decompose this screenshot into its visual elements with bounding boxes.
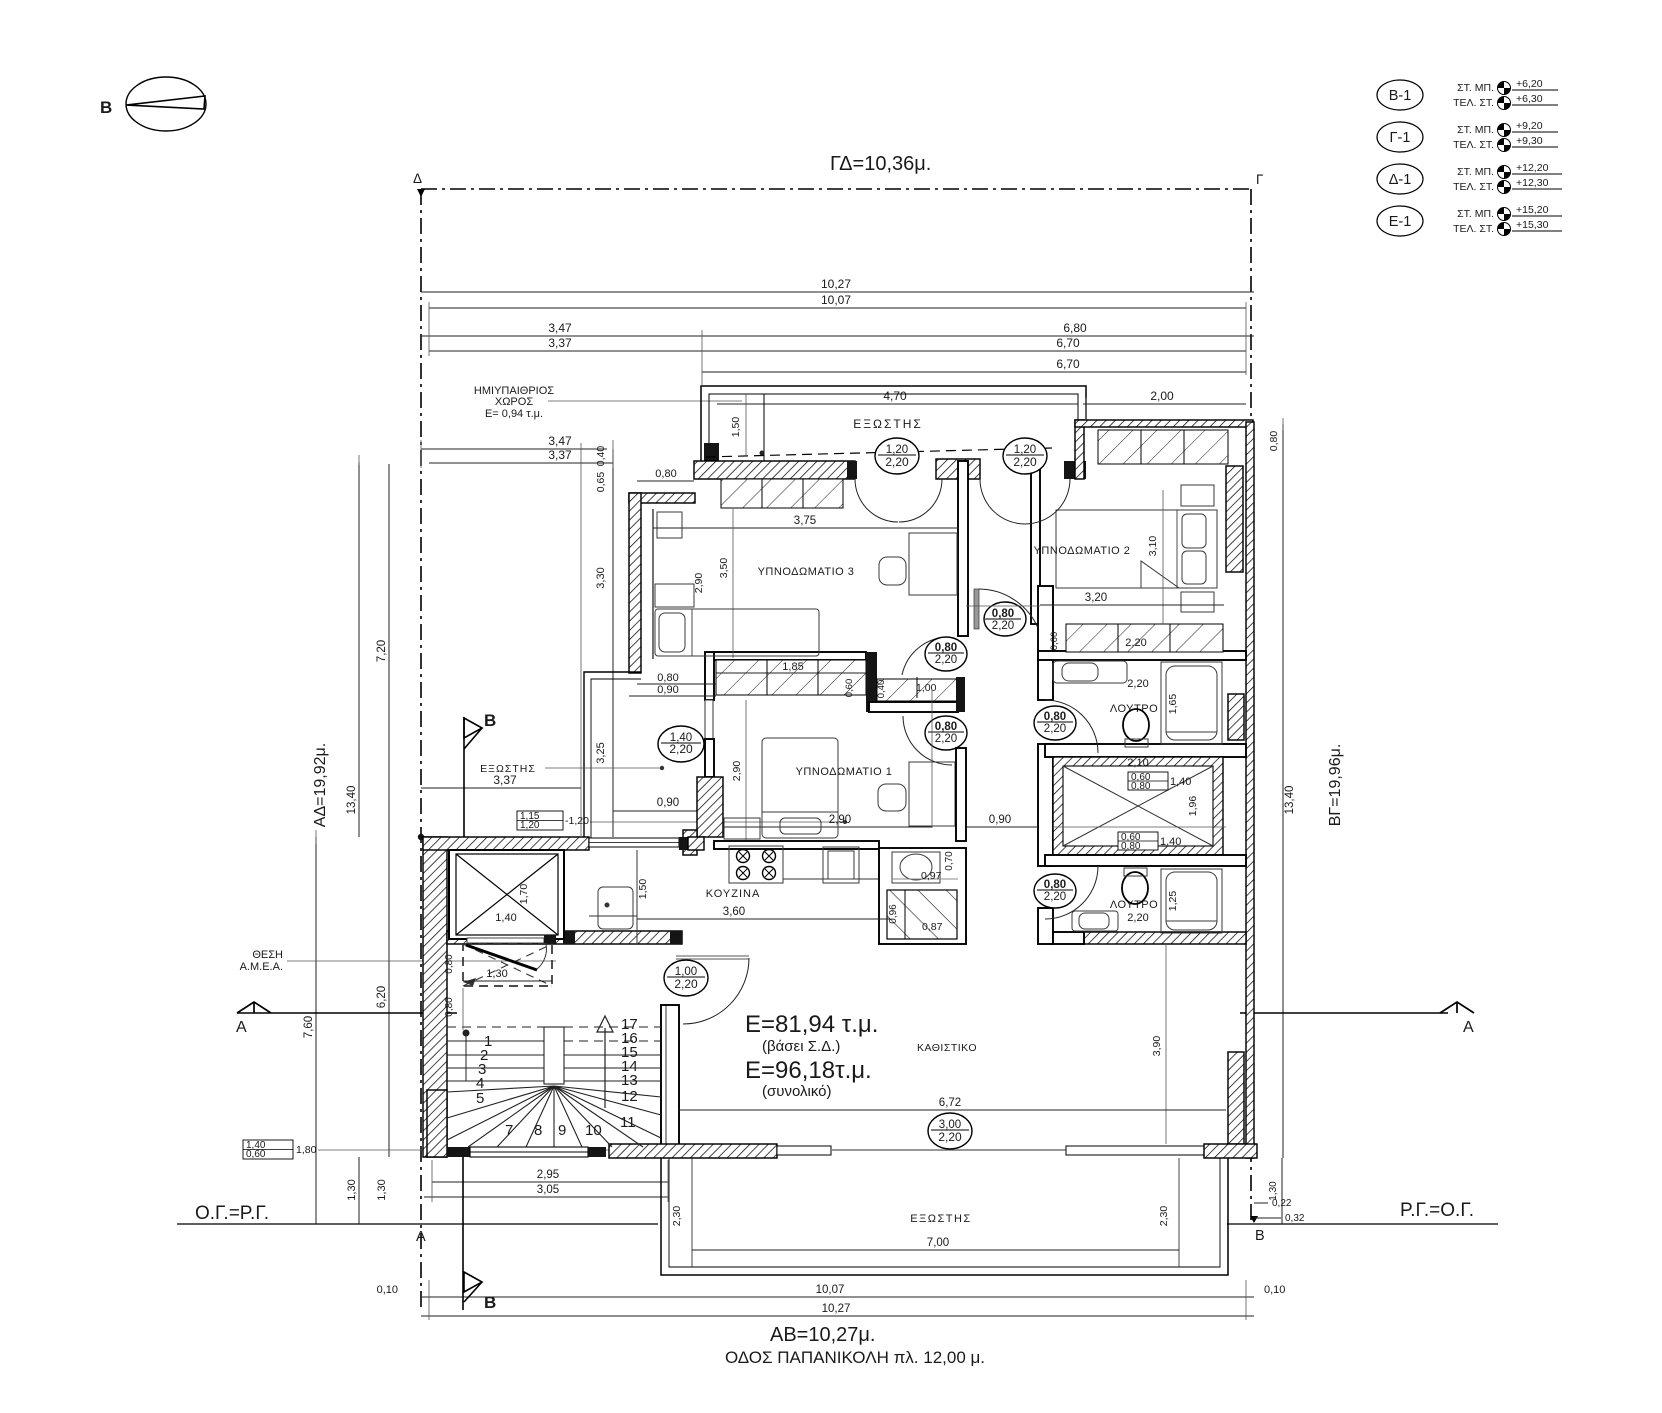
- svg-text:11: 11: [620, 1114, 636, 1131]
- svg-text:0,40: 0,40: [876, 680, 887, 699]
- svg-text:ΑΒ=10,27μ.: ΑΒ=10,27μ.: [770, 1324, 876, 1346]
- svg-text:0,10: 0,10: [1264, 1284, 1285, 1296]
- svg-text:ΕΞΩΣΤΗΣ: ΕΞΩΣΤΗΣ: [853, 417, 923, 431]
- svg-text:0,97: 0,97: [921, 870, 942, 882]
- svg-text:2,90: 2,90: [693, 573, 705, 594]
- svg-text:13,40: 13,40: [1284, 786, 1296, 815]
- svg-text:1,96: 1,96: [1187, 796, 1199, 817]
- svg-text:7,60: 7,60: [303, 1016, 315, 1038]
- svg-text:0,70: 0,70: [944, 851, 955, 871]
- svg-text:2,20: 2,20: [1044, 723, 1066, 735]
- svg-text:7,00: 7,00: [927, 1237, 949, 1249]
- svg-text:17: 17: [621, 1016, 638, 1033]
- svg-text:0,60: 0,60: [1049, 632, 1060, 651]
- svg-text:2,00: 2,00: [1150, 389, 1174, 403]
- svg-text:3,20: 3,20: [1085, 592, 1107, 604]
- svg-text:2,20: 2,20: [1125, 637, 1146, 649]
- svg-text:2,20: 2,20: [885, 455, 909, 469]
- svg-text:A: A: [416, 1229, 426, 1245]
- svg-text:3,37: 3,37: [493, 773, 517, 787]
- svg-text:3,37: 3,37: [548, 448, 572, 462]
- svg-text:A: A: [236, 1019, 247, 1036]
- svg-text:10: 10: [585, 1122, 602, 1139]
- svg-text:1,85: 1,85: [782, 661, 803, 673]
- svg-text:0,80: 0,80: [657, 672, 678, 684]
- svg-text:1,25: 1,25: [1167, 891, 1179, 912]
- svg-text:Ε-1: Ε-1: [1389, 214, 1412, 230]
- svg-text:0,90: 0,90: [657, 797, 679, 809]
- svg-text:1,40: 1,40: [1160, 836, 1181, 848]
- svg-text:0,60: 0,60: [844, 679, 855, 698]
- svg-text:0,65: 0,65: [595, 472, 607, 493]
- svg-text:1,30: 1,30: [486, 968, 507, 980]
- svg-text:ΚΑΘΙΣΤΙΚΟ: ΚΑΘΙΣΤΙΚΟ: [917, 1042, 977, 1054]
- svg-text:3,05: 3,05: [537, 1184, 559, 1196]
- svg-text:12: 12: [621, 1088, 638, 1105]
- svg-text:2,20: 2,20: [1127, 678, 1148, 690]
- svg-text:1,40: 1,40: [495, 912, 516, 924]
- svg-text:3,37: 3,37: [548, 336, 572, 350]
- svg-text:2,90: 2,90: [731, 761, 743, 782]
- svg-text:-1,20: -1,20: [565, 815, 589, 827]
- svg-text:8: 8: [534, 1122, 542, 1139]
- svg-text:3,50: 3,50: [718, 558, 730, 579]
- svg-text:4,70: 4,70: [883, 389, 907, 403]
- svg-text:0,90: 0,90: [657, 684, 678, 696]
- svg-text:2,20: 2,20: [935, 733, 957, 745]
- svg-text:ΟΔΟΣ ΠΑΠΑΝΙΚΟΛΗ πλ. 12,00 μ.: ΟΔΟΣ ΠΑΠΑΝΙΚΟΛΗ πλ. 12,00 μ.: [725, 1348, 985, 1367]
- svg-text:2,30: 2,30: [1158, 1206, 1170, 1227]
- svg-text:2,20: 2,20: [1044, 891, 1066, 903]
- svg-text:Δ-1: Δ-1: [1389, 172, 1412, 188]
- svg-text:1,70: 1,70: [518, 884, 530, 905]
- svg-text:2,90: 2,90: [829, 814, 851, 826]
- svg-text:0,90: 0,90: [989, 814, 1011, 826]
- svg-text:A: A: [1463, 1019, 1474, 1036]
- svg-text:0,80: 0,80: [1044, 711, 1066, 723]
- svg-text:Ο.Γ.=Ρ.Γ.: Ο.Γ.=Ρ.Γ.: [195, 1203, 269, 1224]
- svg-text:0,96: 0,96: [888, 904, 899, 924]
- svg-text:3,90: 3,90: [1151, 1036, 1163, 1057]
- svg-text:0,32: 0,32: [1285, 1213, 1305, 1224]
- svg-text:Γ: Γ: [1256, 172, 1264, 187]
- svg-text:1,65: 1,65: [1167, 694, 1179, 715]
- svg-text:0,80: 0,80: [1131, 781, 1151, 792]
- svg-text:B: B: [1255, 1228, 1265, 1244]
- svg-text:ΓΔ=10,36μ.: ΓΔ=10,36μ.: [830, 153, 931, 175]
- svg-text:+12,20: +12,20: [1516, 162, 1549, 174]
- svg-text:2,20: 2,20: [1127, 912, 1148, 924]
- svg-text:B: B: [100, 98, 112, 117]
- svg-text:0,87: 0,87: [922, 921, 943, 933]
- svg-text:ΥΠΝΟΔΩΜΑΤΙΟ 2: ΥΠΝΟΔΩΜΑΤΙΟ 2: [1034, 545, 1131, 557]
- svg-text:ΑΔ=19,92μ.: ΑΔ=19,92μ.: [312, 743, 329, 827]
- svg-text:3,10: 3,10: [1147, 536, 1159, 557]
- svg-text:3,30: 3,30: [595, 567, 607, 588]
- svg-text:ΣΤ. ΜΠ.: ΣΤ. ΜΠ.: [1457, 166, 1494, 178]
- svg-text:ΥΠΝΟΔΩΜΑΤΙΟ 3: ΥΠΝΟΔΩΜΑΤΙΟ 3: [758, 566, 855, 578]
- svg-text:6,72: 6,72: [939, 1097, 961, 1109]
- svg-text:3,25: 3,25: [595, 742, 607, 763]
- svg-text:Δ: Δ: [413, 171, 422, 186]
- svg-text:3,47: 3,47: [548, 434, 572, 448]
- svg-text:10,27: 10,27: [822, 1303, 851, 1315]
- svg-text:ΚΟΥΖΙΝΑ: ΚΟΥΖΙΝΑ: [706, 888, 761, 900]
- svg-text:0,40: 0,40: [595, 446, 607, 467]
- svg-text:ΕΞΩΣΤΗΣ: ΕΞΩΣΤΗΣ: [910, 1213, 971, 1225]
- svg-text:E=96,18τ.μ.: E=96,18τ.μ.: [745, 1057, 872, 1084]
- svg-text:Γ-1: Γ-1: [1390, 130, 1411, 146]
- svg-text:ΧΩΡΟΣ: ΧΩΡΟΣ: [495, 396, 533, 408]
- svg-text:ΛΟΥΤΡΟ: ΛΟΥΤΡΟ: [1110, 899, 1158, 911]
- svg-text:1,80: 1,80: [296, 1144, 317, 1156]
- svg-text:ΣΤ. ΜΠ.: ΣΤ. ΜΠ.: [1457, 208, 1494, 220]
- svg-text:1,50: 1,50: [730, 417, 742, 438]
- svg-text:A.M.E.A.: A.M.E.A.: [240, 961, 283, 973]
- svg-text:Β-1: Β-1: [1389, 88, 1412, 104]
- svg-text:2,20: 2,20: [992, 620, 1014, 632]
- svg-text:(συνολικό): (συνολικό): [762, 1083, 832, 1100]
- svg-text:1,00: 1,00: [916, 682, 937, 694]
- svg-text:13,40: 13,40: [346, 786, 358, 815]
- svg-text:1,50: 1,50: [637, 879, 649, 900]
- svg-text:2,20: 2,20: [669, 742, 693, 756]
- svg-text:7,20: 7,20: [376, 640, 388, 662]
- svg-text:2,20: 2,20: [1013, 455, 1037, 469]
- svg-text:ΕΞΩΣΤΗΣ: ΕΞΩΣΤΗΣ: [480, 763, 536, 775]
- svg-text:0,80: 0,80: [935, 642, 957, 654]
- svg-text:ΣΤ. ΜΠ.: ΣΤ. ΜΠ.: [1457, 124, 1494, 136]
- svg-text:(βάσει Σ.Δ.): (βάσει Σ.Δ.): [762, 1038, 840, 1055]
- svg-text:ΤΕΛ. ΣΤ.: ΤΕΛ. ΣΤ.: [1453, 97, 1494, 109]
- svg-text:6,70: 6,70: [1056, 336, 1080, 350]
- svg-text:0,80: 0,80: [992, 608, 1014, 620]
- svg-text:3,60: 3,60: [723, 906, 745, 918]
- svg-text:0,80: 0,80: [444, 954, 455, 974]
- svg-text:+6,30: +6,30: [1516, 93, 1543, 105]
- svg-text:ΘΕΣΗ: ΘΕΣΗ: [252, 949, 283, 961]
- svg-text:0,60: 0,60: [246, 1149, 266, 1160]
- svg-text:ΤΕΛ. ΣΤ.: ΤΕΛ. ΣΤ.: [1453, 223, 1494, 235]
- svg-text:ΤΕΛ. ΣΤ.: ΤΕΛ. ΣΤ.: [1453, 181, 1494, 193]
- svg-text:0,80: 0,80: [1268, 431, 1280, 452]
- svg-text:9: 9: [558, 1122, 566, 1139]
- svg-text:+15,30: +15,30: [1516, 219, 1549, 231]
- svg-text:6,20: 6,20: [376, 986, 388, 1008]
- svg-text:3,75: 3,75: [794, 515, 816, 527]
- svg-text:1,30: 1,30: [376, 1179, 388, 1200]
- svg-text:6,70: 6,70: [1056, 357, 1080, 371]
- svg-text:10,27: 10,27: [821, 277, 851, 291]
- svg-text:2,20: 2,20: [674, 977, 698, 991]
- svg-text:3,47: 3,47: [548, 321, 572, 335]
- svg-text:+6,20: +6,20: [1516, 78, 1543, 90]
- svg-text:ΥΠΝΟΔΩΜΑΤΙΟ 1: ΥΠΝΟΔΩΜΑΤΙΟ 1: [796, 766, 893, 778]
- svg-text:0,10: 0,10: [377, 1284, 398, 1296]
- svg-text:0,80: 0,80: [1121, 841, 1141, 852]
- svg-text:2,30: 2,30: [671, 1206, 683, 1227]
- svg-text:6,80: 6,80: [1063, 321, 1087, 335]
- svg-text:0,80: 0,80: [935, 721, 957, 733]
- svg-text:+9,30: +9,30: [1516, 135, 1543, 147]
- svg-text:ΤΕΛ. ΣΤ.: ΤΕΛ. ΣΤ.: [1453, 139, 1494, 151]
- svg-text:5: 5: [476, 1090, 484, 1107]
- svg-text:ΣΤ. ΜΠ.: ΣΤ. ΜΠ.: [1457, 82, 1494, 94]
- svg-text:+9,20: +9,20: [1516, 120, 1543, 132]
- svg-text:ΒΓ=19,96μ.: ΒΓ=19,96μ.: [1327, 744, 1344, 827]
- svg-text:+12,30: +12,30: [1516, 177, 1549, 189]
- svg-text:Ρ.Γ.=Ο.Γ.: Ρ.Γ.=Ο.Γ.: [1400, 1200, 1474, 1221]
- svg-text:E=81,94 τ.μ.: E=81,94 τ.μ.: [745, 1011, 878, 1038]
- svg-text:10,07: 10,07: [821, 293, 851, 307]
- svg-text:7: 7: [505, 1122, 513, 1139]
- svg-text:1,20: 1,20: [520, 820, 540, 831]
- svg-text:2,10: 2,10: [1127, 757, 1148, 769]
- svg-text:B: B: [484, 711, 496, 730]
- svg-text:0,80: 0,80: [444, 997, 455, 1017]
- svg-text:0,80: 0,80: [655, 468, 676, 480]
- svg-text:2,20: 2,20: [938, 1130, 962, 1144]
- svg-text:1,40: 1,40: [1170, 776, 1191, 788]
- svg-text:10,07: 10,07: [816, 1284, 845, 1296]
- svg-text:1,30: 1,30: [346, 1179, 358, 1200]
- svg-text:2,20: 2,20: [935, 654, 957, 666]
- svg-text:+15,20: +15,20: [1516, 204, 1549, 216]
- svg-text:Ε= 0,94 τ.μ.: Ε= 0,94 τ.μ.: [485, 408, 543, 420]
- svg-text:2,95: 2,95: [537, 1169, 559, 1181]
- svg-text:B: B: [484, 1293, 496, 1312]
- svg-text:0,80: 0,80: [1044, 879, 1066, 891]
